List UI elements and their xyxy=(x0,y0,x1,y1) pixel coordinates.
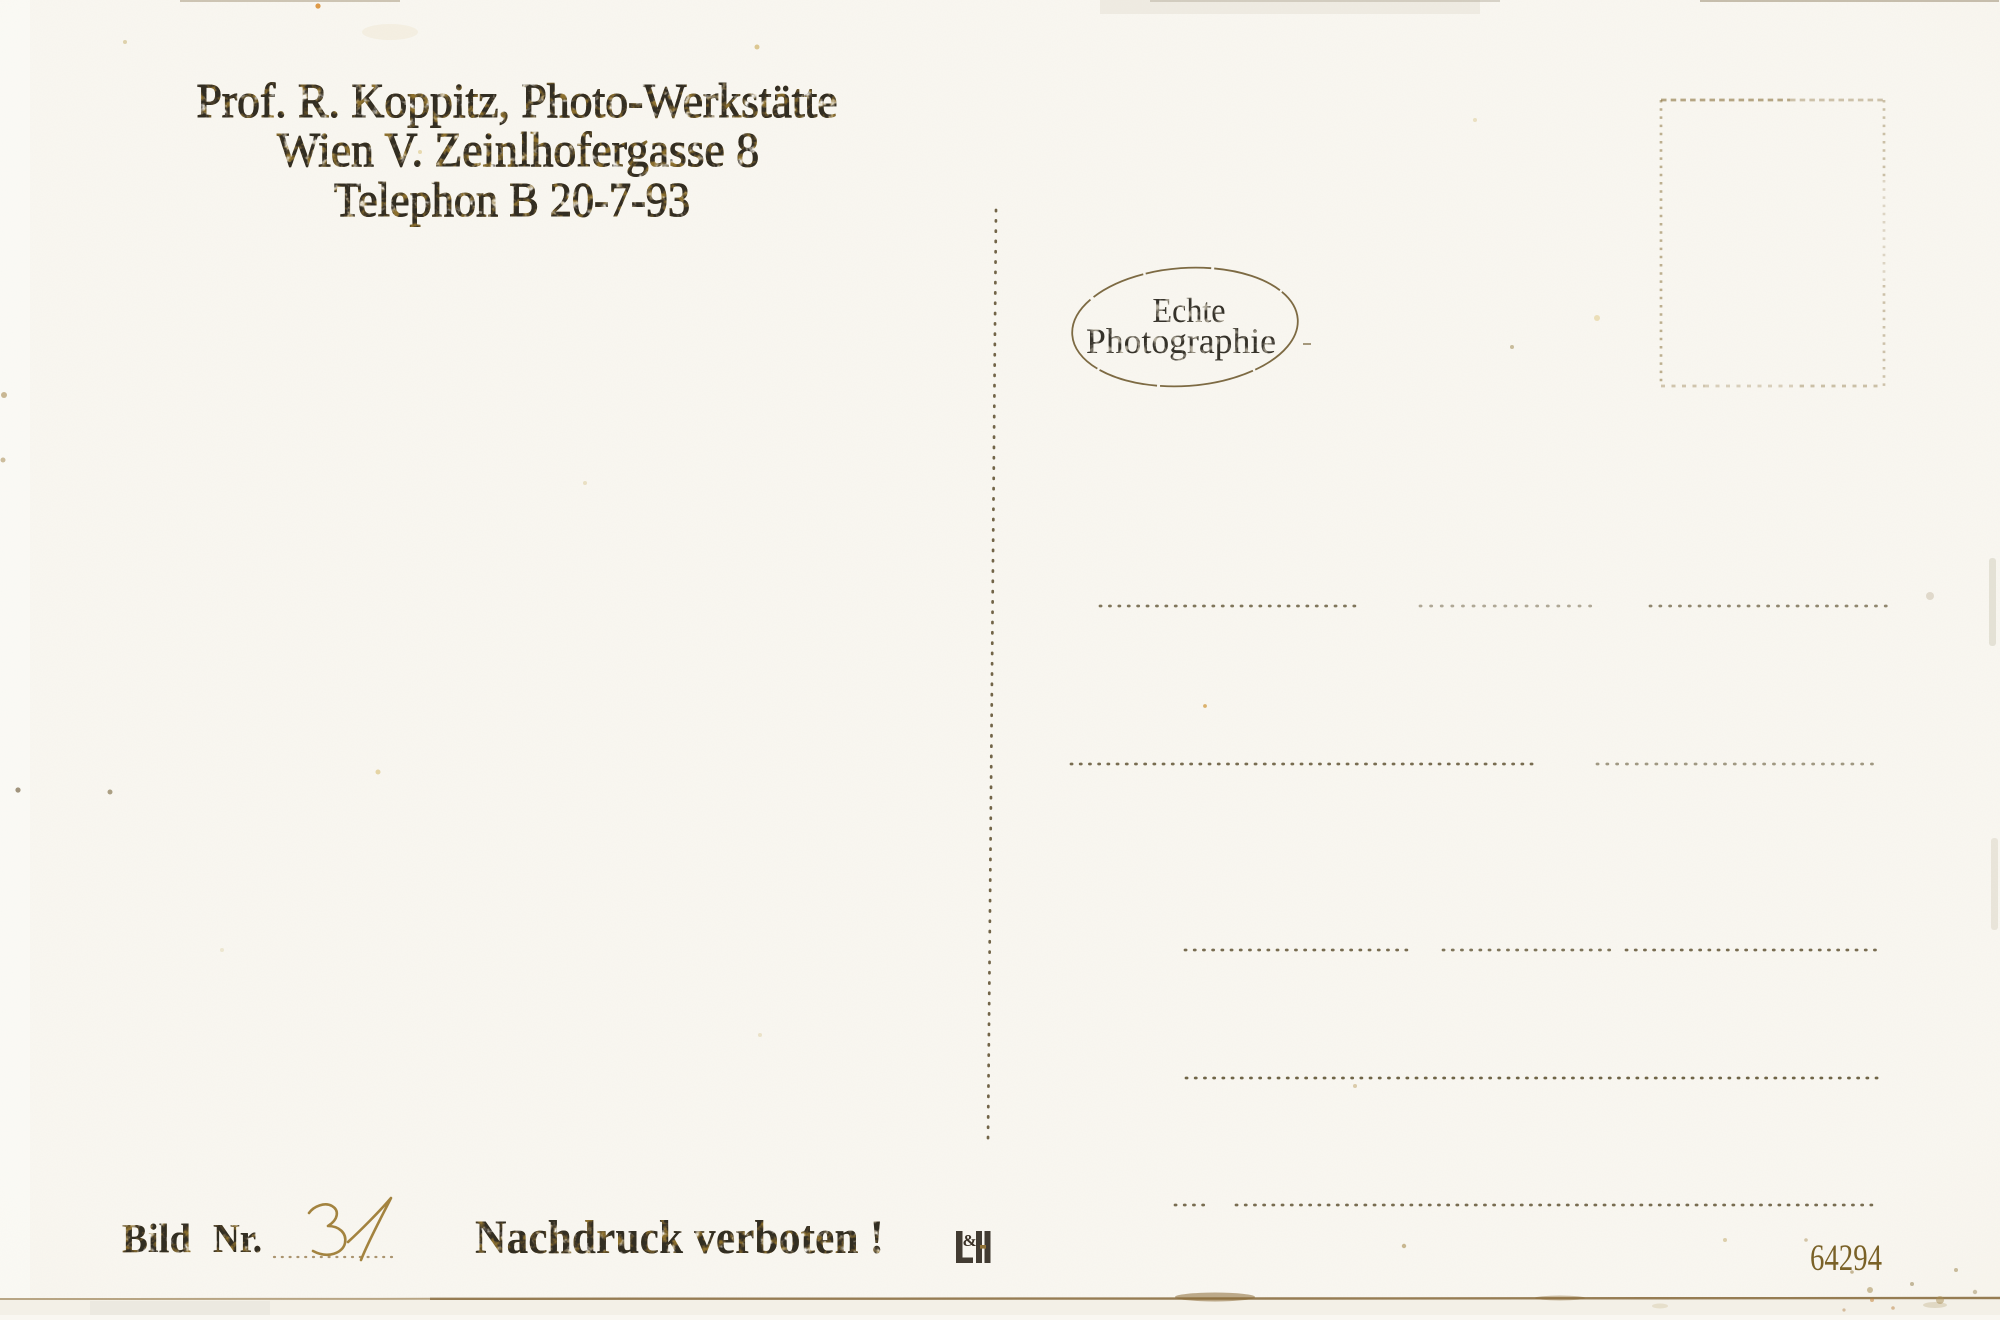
svg-text:&: & xyxy=(963,1231,977,1250)
svg-text:Wien V. Zeinlhofergasse 8: Wien V. Zeinlhofergasse 8 xyxy=(277,122,759,177)
svg-text:Telephon B 20-7-93: Telephon B 20-7-93 xyxy=(334,172,690,227)
svg-text:Prof. R. Koppitz, Photo-Werkst: Prof. R. Koppitz, Photo-Werkstätte xyxy=(197,73,838,128)
svg-text:64294: 64294 xyxy=(1810,1238,1882,1279)
svg-text:Nachdruck verboten !: Nachdruck verboten ! xyxy=(475,1211,884,1264)
svg-text:Bild: Bild xyxy=(122,1215,191,1261)
svg-text:Nr.: Nr. xyxy=(213,1215,262,1261)
svg-text:Photographie: Photographie xyxy=(1086,321,1276,361)
